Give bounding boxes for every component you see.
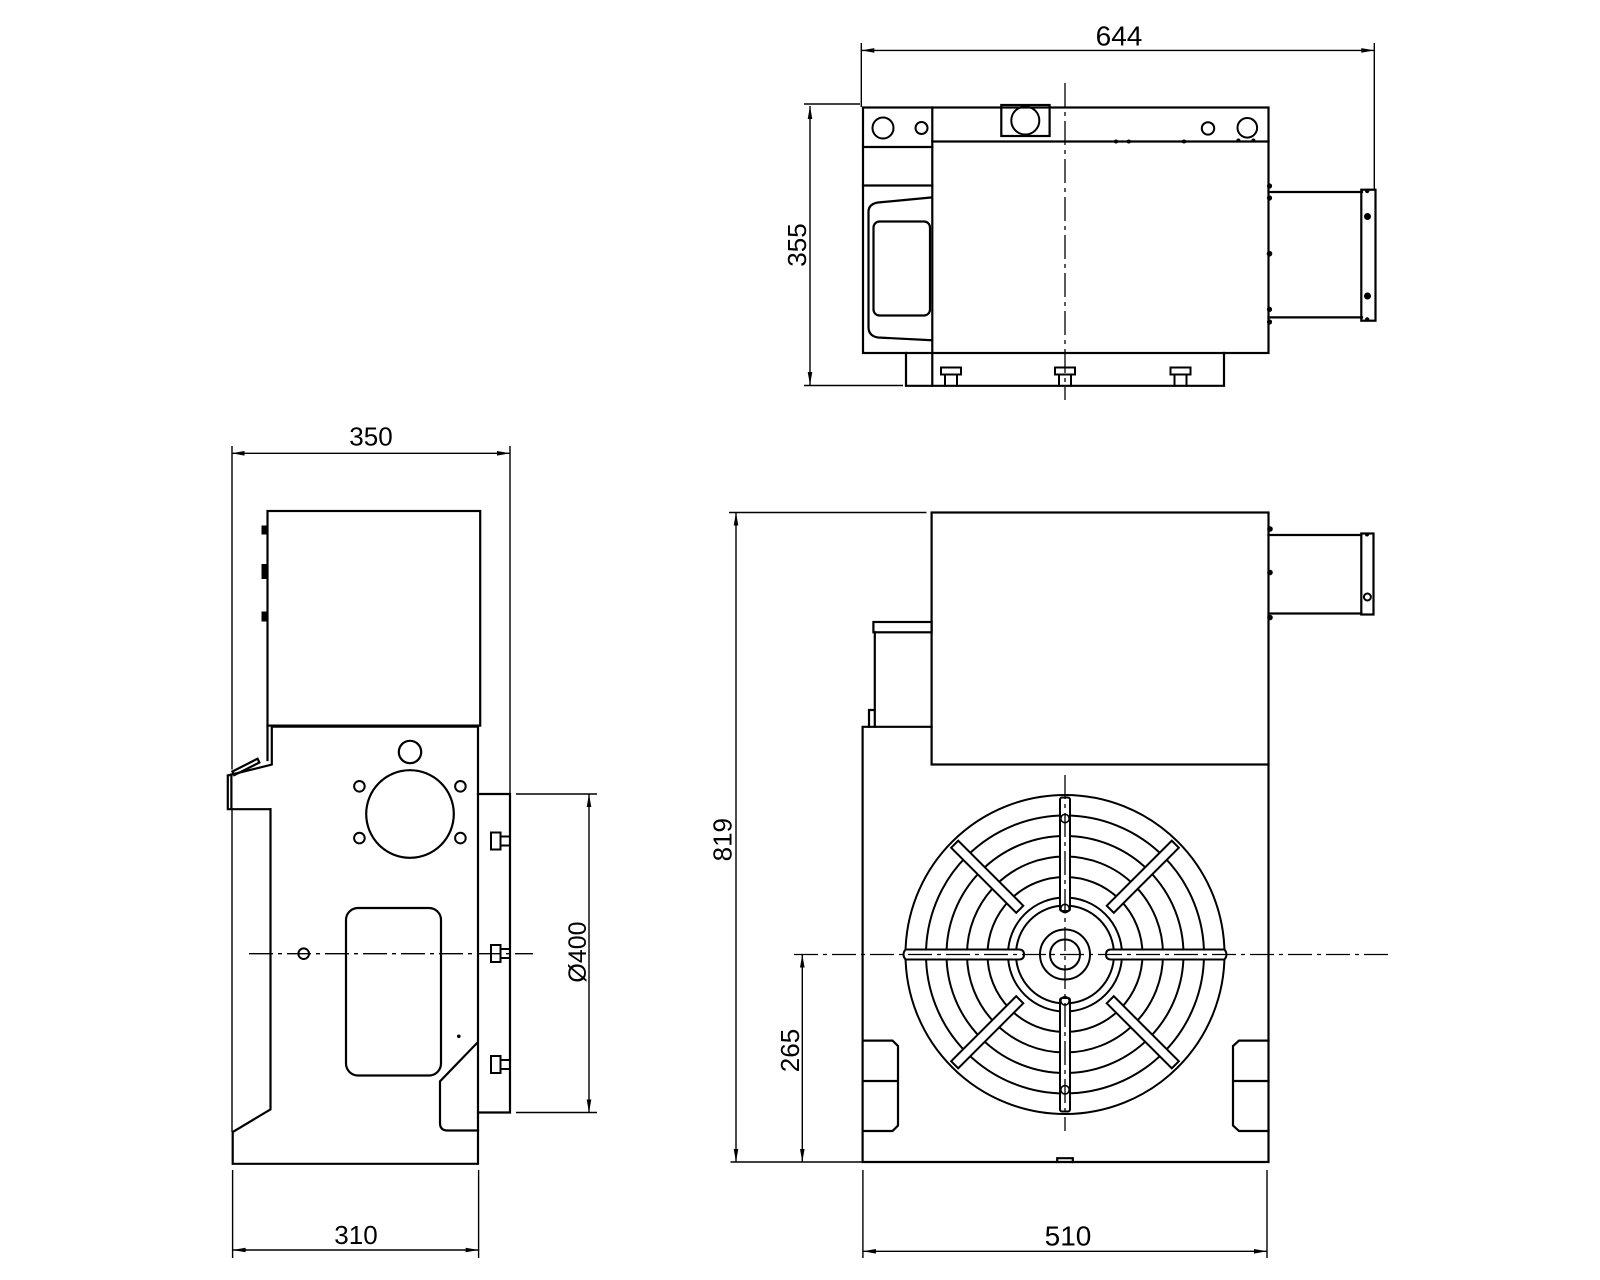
svg-text:510: 510	[1045, 1221, 1092, 1252]
svg-text:644: 644	[1096, 21, 1143, 52]
svg-text:355: 355	[782, 223, 812, 266]
svg-text:310: 310	[334, 1220, 377, 1250]
svg-text:819: 819	[708, 818, 738, 861]
svg-text:350: 350	[349, 422, 392, 452]
svg-text:265: 265	[775, 1029, 805, 1072]
svg-text:Ø400: Ø400	[564, 921, 592, 982]
